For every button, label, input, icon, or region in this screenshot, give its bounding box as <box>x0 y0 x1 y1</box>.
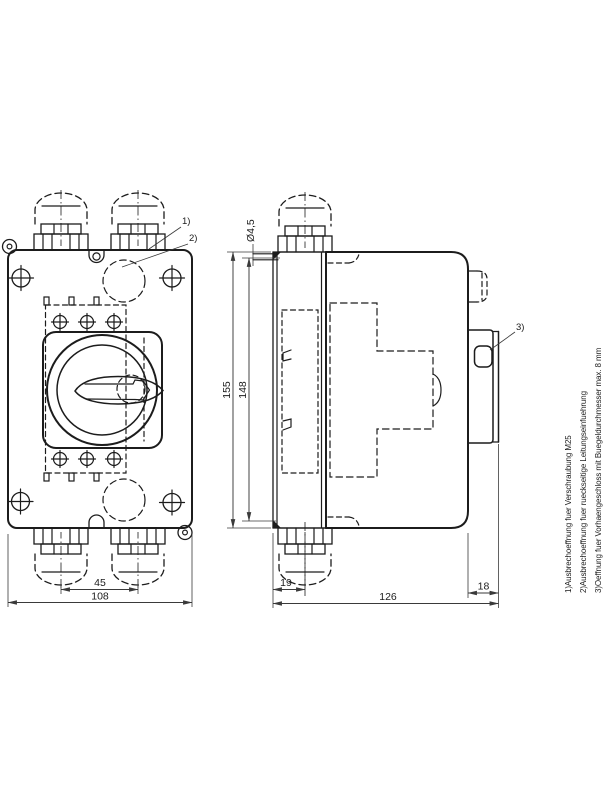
corner-screw <box>8 489 33 514</box>
knockout-circle-bottom <box>103 479 145 521</box>
terminal-screw <box>79 451 96 468</box>
enclosure-side-outline <box>326 252 468 528</box>
callout-2-leader <box>122 244 188 267</box>
callout-3-label: 3) <box>516 322 524 333</box>
dim-19-text: 19 <box>280 577 292 589</box>
cable-gland-top-left <box>34 190 88 250</box>
terminal-screw <box>52 314 69 331</box>
dim-126-text: 126 <box>379 591 397 603</box>
padlock-hole <box>475 346 493 367</box>
corner-screw <box>160 490 185 515</box>
dim-148-text: 148 <box>237 381 249 399</box>
cable-gland-side-top <box>278 192 332 252</box>
side-view: 3) Ø4,5 155 148 19 <box>221 192 524 608</box>
footnote-2: 2)Ausbrechoeffnung fuer rueckseitige Lei… <box>579 391 588 593</box>
front-view: 1) 2) 45 108 <box>3 190 198 607</box>
terminal-cover-protrusion <box>468 271 487 302</box>
cable-gland-bottom-right <box>111 528 165 588</box>
terminal-screw <box>52 451 69 468</box>
cable-gland-bottom-left <box>34 528 88 588</box>
dim-18-text: 18 <box>478 581 490 593</box>
dim-45-text: 45 <box>94 577 106 589</box>
callout-2-label: 2) <box>189 233 197 244</box>
terminal-screw <box>79 314 96 331</box>
dim-155-text: 155 <box>221 381 233 399</box>
switch-body-hidden-outline <box>44 297 144 481</box>
internal-hidden-outline <box>282 254 441 526</box>
corner-screw <box>9 266 34 291</box>
callout-1-label: 1) <box>182 216 190 227</box>
mounting-ear-top-left <box>3 240 17 254</box>
keyhole-tab-bottom <box>89 515 104 527</box>
terminal-screw <box>106 314 123 331</box>
dimension-depth: 126 <box>273 591 499 604</box>
technical-drawing: 1) 2) 45 108 <box>0 0 612 792</box>
footnotes: 1)Ausbrechoeffnung fuer Verschraubung M2… <box>564 347 603 593</box>
corner-screw <box>160 266 185 291</box>
footnote-1: 1)Ausbrechoeffnung fuer Verschraubung M2… <box>564 435 573 593</box>
knob-outer-circle <box>47 335 157 445</box>
cable-gland-top-right <box>111 190 165 250</box>
dim-hole-text: Ø4,5 <box>245 219 257 242</box>
footnote-3: 3)Oeffnung fuer Vorhaengeschloss mit Bue… <box>594 347 603 593</box>
knob-inner-circle <box>57 345 147 435</box>
enclosure-front-outline <box>8 250 192 528</box>
drawing-page: 1) 2) 45 108 <box>0 0 612 792</box>
dimension-handle-depth: 18 <box>468 444 499 608</box>
dim-108-text: 108 <box>91 591 109 603</box>
keyhole-tab-top <box>89 251 104 263</box>
terminal-screw <box>106 451 123 468</box>
rotary-handle <box>75 375 163 404</box>
